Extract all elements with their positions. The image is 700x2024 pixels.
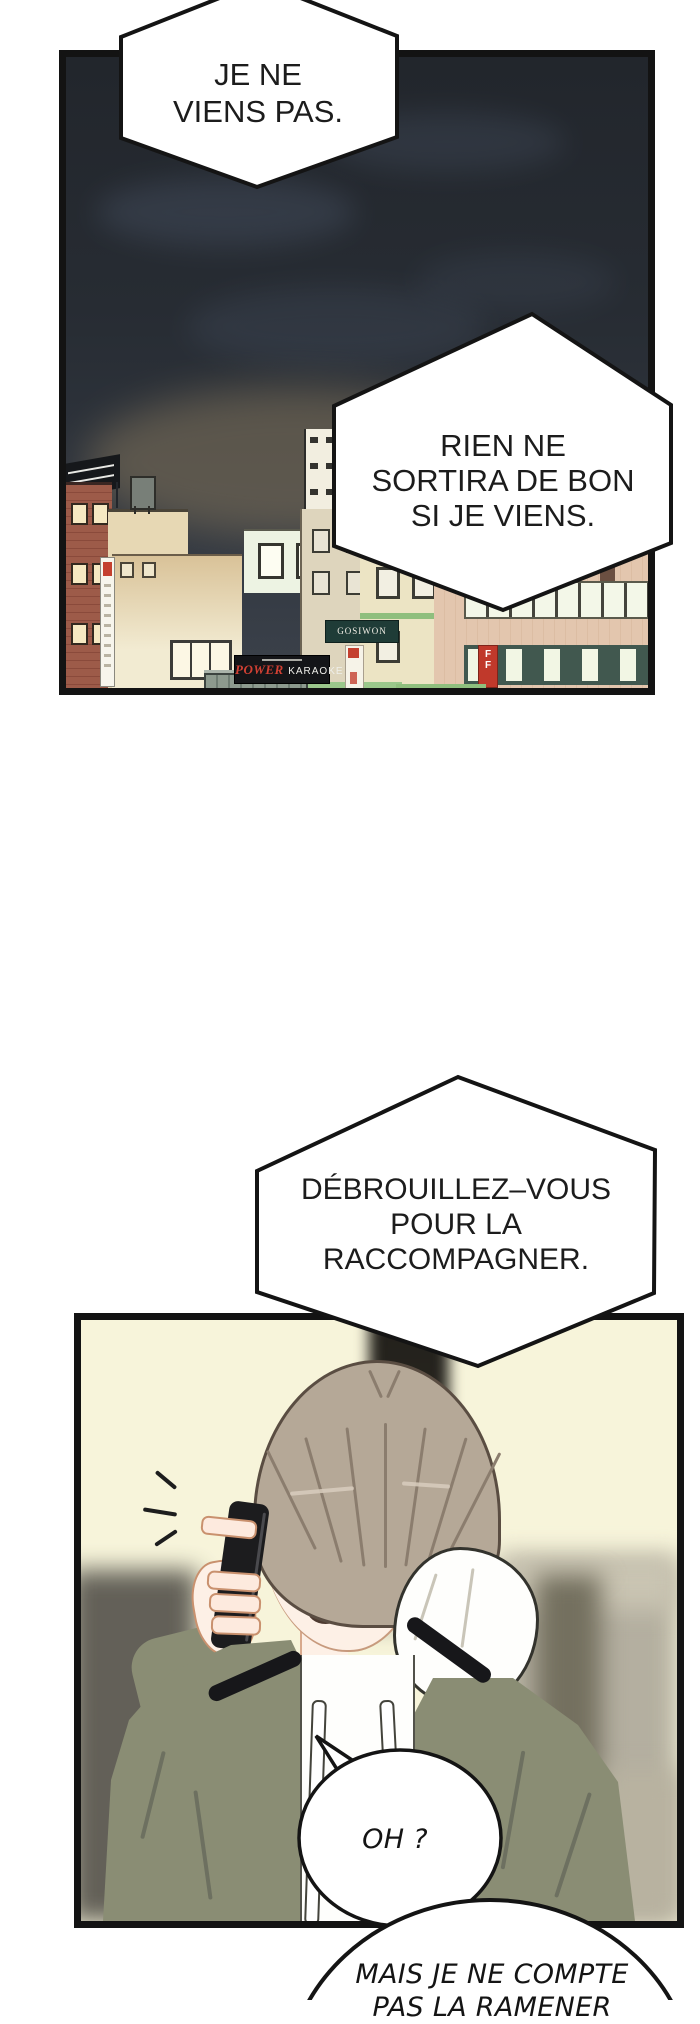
- bubble1-text: JE NE VIENS PAS.: [124, 56, 392, 130]
- comic-page: { "panel1": { "bubble1": { "lines": ["JE…: [0, 0, 700, 2000]
- bubble3-text: DÉBROUILLEZ–VOUS POUR LA RACCOMPAGNER.: [256, 1172, 656, 1277]
- speech-bubbles-layer: [0, 0, 700, 2000]
- bubble2-text: RIEN NE SORTIRA DE BON SI JE VIENS.: [343, 428, 663, 533]
- bubble4-text: OH ?: [315, 1823, 475, 1856]
- bubble5-text: MAIS JE NE COMPTE PAS LA RAMENER: [292, 1958, 692, 2024]
